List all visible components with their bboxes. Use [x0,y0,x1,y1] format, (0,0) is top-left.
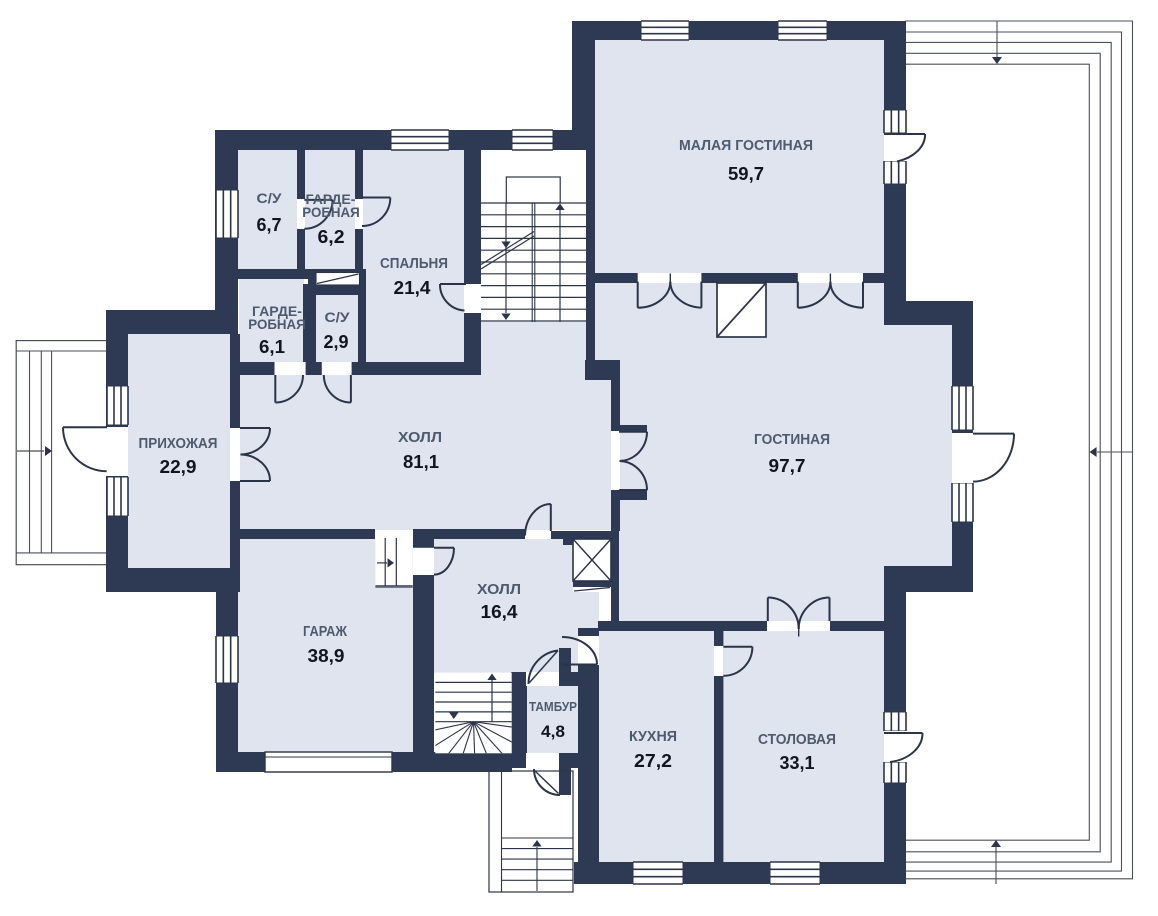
svg-text:4,8: 4,8 [541,723,565,741]
svg-text:ТАМБУР: ТАМБУР [529,699,577,714]
svg-text:СПАЛЬНЯ: СПАЛЬНЯ [380,256,448,272]
svg-text:МАЛАЯ ГОСТИНАЯ: МАЛАЯ ГОСТИНАЯ [679,138,813,154]
svg-text:ХОЛЛ: ХОЛЛ [477,582,521,598]
svg-text:27,2: 27,2 [634,750,672,771]
svg-text:С/У: С/У [325,310,351,325]
svg-text:ГОСТИНАЯ: ГОСТИНАЯ [754,432,830,448]
svg-text:С/У: С/У [257,191,283,206]
svg-text:РОБНАЯ: РОБНАЯ [248,316,306,332]
svg-text:РОБНАЯ: РОБНАЯ [302,204,360,220]
svg-text:38,9: 38,9 [308,645,345,666]
svg-text:2,9: 2,9 [324,331,349,352]
svg-text:6,1: 6,1 [259,336,285,357]
svg-text:81,1: 81,1 [403,451,439,472]
svg-text:21,4: 21,4 [394,277,432,298]
svg-text:16,4: 16,4 [481,601,519,622]
svg-text:ПРИХОЖАЯ: ПРИХОЖАЯ [139,436,218,452]
svg-text:ГАРАЖ: ГАРАЖ [303,624,348,640]
svg-text:ХОЛЛ: ХОЛЛ [398,430,442,446]
svg-text:22,9: 22,9 [160,456,197,477]
svg-text:6,2: 6,2 [318,226,345,247]
svg-text:6,7: 6,7 [257,214,282,235]
svg-text:33,1: 33,1 [780,752,815,773]
svg-text:СТОЛОВАЯ: СТОЛОВАЯ [758,732,836,748]
svg-text:КУХНЯ: КУХНЯ [629,729,677,745]
svg-text:59,7: 59,7 [728,163,764,184]
svg-text:97,7: 97,7 [769,455,806,476]
